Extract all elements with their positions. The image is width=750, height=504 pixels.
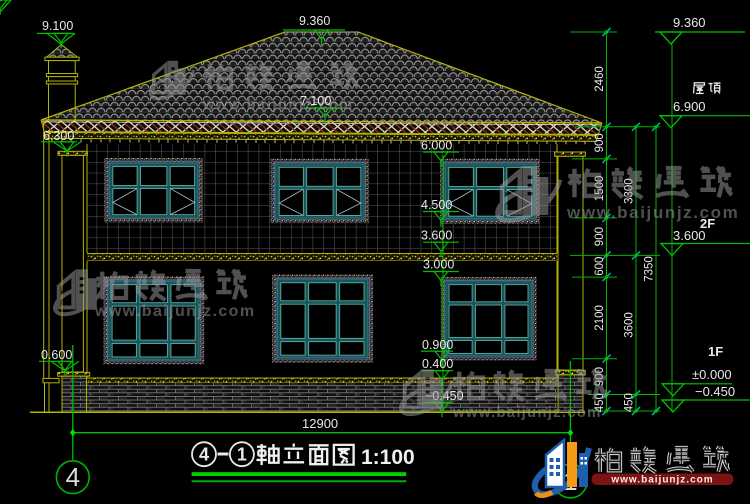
svg-text:4: 4 xyxy=(66,462,80,492)
svg-text:4: 4 xyxy=(199,445,209,465)
svg-text:www.baijunjz.com: www.baijunjz.com xyxy=(202,97,354,113)
svg-text:9.360: 9.360 xyxy=(673,15,706,30)
svg-text:9.360: 9.360 xyxy=(299,14,330,28)
svg-text:±0.000: ±0.000 xyxy=(692,367,732,382)
svg-text:3.600: 3.600 xyxy=(421,229,452,243)
svg-text:900: 900 xyxy=(594,133,606,152)
svg-text:12900: 12900 xyxy=(302,416,338,431)
svg-text:2460: 2460 xyxy=(594,66,606,92)
svg-text:9.100: 9.100 xyxy=(42,19,73,33)
svg-text:6.900: 6.900 xyxy=(673,99,706,114)
svg-text:1F: 1F xyxy=(708,344,723,359)
svg-text:1: 1 xyxy=(237,445,247,465)
svg-text:6.300: 6.300 xyxy=(43,129,74,143)
svg-text:3.600: 3.600 xyxy=(673,228,706,243)
svg-text:−0.450: −0.450 xyxy=(695,384,735,399)
svg-text:www.baijunjz.com: www.baijunjz.com xyxy=(452,404,602,421)
svg-text:0.900: 0.900 xyxy=(422,338,453,352)
svg-text:www.baijunjz.com: www.baijunjz.com xyxy=(610,475,713,486)
svg-text:0.600: 0.600 xyxy=(41,348,72,362)
svg-text:3600: 3600 xyxy=(624,312,636,338)
svg-text:3.000: 3.000 xyxy=(423,258,454,272)
svg-text:900: 900 xyxy=(594,227,606,246)
svg-text:6.000: 6.000 xyxy=(421,139,452,153)
svg-text:www.baijunjz.com: www.baijunjz.com xyxy=(94,303,256,320)
svg-text:4.500: 4.500 xyxy=(421,198,452,212)
svg-text:0.400: 0.400 xyxy=(422,357,453,371)
svg-text:450: 450 xyxy=(624,393,636,412)
svg-text:www.baijunjz.com: www.baijunjz.com xyxy=(566,203,739,222)
svg-text:600: 600 xyxy=(594,257,606,276)
svg-text:7350: 7350 xyxy=(644,256,656,282)
svg-text:1:100: 1:100 xyxy=(361,446,415,469)
svg-text:2100: 2100 xyxy=(594,305,606,331)
